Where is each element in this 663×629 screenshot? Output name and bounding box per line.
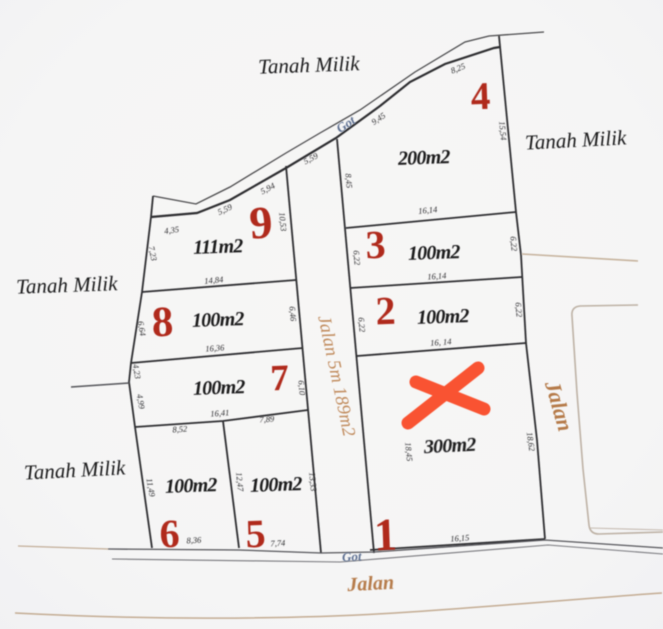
svg-text:6,46: 6,46 (287, 306, 298, 322)
svg-text:200m2: 200m2 (397, 146, 451, 170)
svg-text:8: 8 (151, 299, 174, 347)
svg-text:5: 5 (245, 511, 267, 557)
svg-text:100m2: 100m2 (417, 305, 470, 329)
svg-text:100m2: 100m2 (408, 241, 461, 265)
svg-text:9: 9 (248, 196, 275, 248)
svg-text:16,15: 16,15 (450, 532, 470, 543)
svg-text:8,36: 8,36 (186, 535, 202, 546)
svg-text:3: 3 (365, 222, 387, 268)
svg-text:6,10: 6,10 (296, 380, 307, 396)
svg-text:6,22: 6,22 (508, 236, 519, 252)
svg-text:Tanah Milik: Tanah Milik (16, 271, 119, 299)
svg-text:16,14: 16,14 (418, 204, 439, 216)
svg-text:300m2: 300m2 (422, 434, 476, 459)
svg-text:7,89: 7,89 (259, 413, 275, 424)
svg-text:6,22: 6,22 (351, 250, 362, 266)
svg-text:15,54: 15,54 (497, 121, 509, 142)
svg-text:8,52: 8,52 (172, 423, 188, 434)
svg-text:13,33: 13,33 (307, 472, 319, 492)
svg-text:16,41: 16,41 (210, 407, 230, 418)
svg-text:111m2: 111m2 (193, 235, 244, 259)
svg-text:16,36: 16,36 (205, 342, 226, 353)
svg-text:14,84: 14,84 (204, 274, 225, 286)
svg-text:Jalan: Jalan (346, 572, 395, 596)
svg-text:7,74: 7,74 (270, 538, 286, 549)
svg-text:16,14: 16,14 (427, 270, 448, 281)
svg-text:Got: Got (342, 548, 363, 564)
svg-text:4,35: 4,35 (164, 224, 180, 236)
svg-text:Tanah Milik: Tanah Milik (258, 51, 361, 79)
svg-text:100m2: 100m2 (193, 376, 246, 400)
svg-text:6,22: 6,22 (513, 302, 524, 318)
svg-text:4: 4 (470, 75, 491, 119)
svg-text:10,53: 10,53 (277, 212, 289, 232)
svg-text:12,47: 12,47 (234, 472, 246, 493)
svg-text:100m2: 100m2 (192, 308, 245, 332)
svg-text:18,45: 18,45 (403, 442, 415, 462)
svg-text:8,45: 8,45 (343, 173, 354, 189)
svg-text:100m2: 100m2 (165, 474, 218, 498)
svg-text:16, 14: 16, 14 (430, 336, 453, 348)
svg-text:2: 2 (375, 288, 397, 334)
svg-text:6: 6 (159, 511, 181, 557)
svg-text:7: 7 (270, 358, 290, 400)
svg-text:100m2: 100m2 (250, 473, 303, 497)
svg-text:6,22: 6,22 (356, 317, 367, 333)
svg-text:1: 1 (373, 509, 398, 561)
